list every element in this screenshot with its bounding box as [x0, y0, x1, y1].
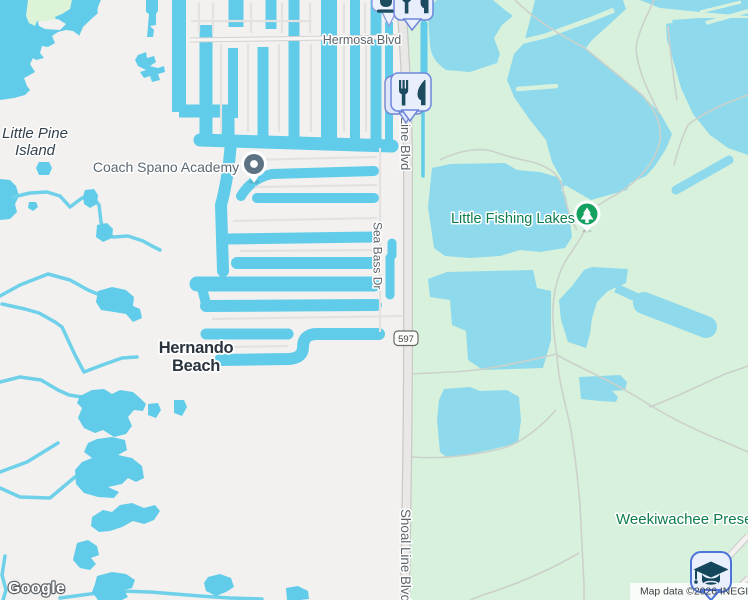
svg-text:Hernando: Hernando	[159, 339, 234, 357]
svg-text:Google: Google	[8, 580, 65, 597]
svg-text:Island: Island	[15, 142, 56, 159]
svg-text:Little Pine: Little Pine	[2, 125, 68, 142]
svg-text:Map data ©2026 INEGI: Map data ©2026 INEGI	[640, 587, 748, 598]
svg-text:Weekiwachee Preser: Weekiwachee Preser	[616, 511, 748, 528]
svg-text:597: 597	[398, 334, 414, 345]
svg-text:Hermosa Blvd: Hermosa Blvd	[323, 33, 402, 47]
svg-text:Sea Bass Dr: Sea Bass Dr	[371, 222, 385, 289]
svg-text:Little Fishing Lakes: Little Fishing Lakes	[451, 211, 575, 227]
svg-text:Beach: Beach	[172, 357, 220, 375]
svg-text:Shoal Line Blvd: Shoal Line Blvd	[398, 509, 413, 600]
svg-text:Coach Spano Academy: Coach Spano Academy	[93, 159, 239, 175]
